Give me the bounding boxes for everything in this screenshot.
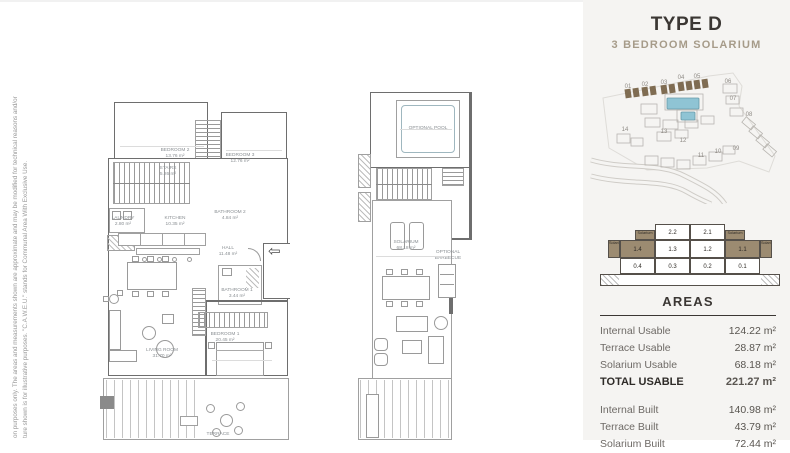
building-section: Solarium 2.2 2.1 Solarium Solarium 1.4 1… [608, 224, 764, 288]
areas-table: AREAS Internal Usable 124.22 m² Terrace … [583, 294, 790, 453]
chair [416, 301, 423, 307]
dimension-line [400, 129, 452, 130]
toilet [222, 268, 232, 276]
building-number: 06 [725, 79, 732, 85]
ladder [442, 168, 464, 186]
chair [162, 291, 169, 297]
disclaimer: on purposes only. The areas and measurem… [11, 58, 31, 438]
barbecue [438, 264, 456, 298]
coffee-table [402, 340, 422, 354]
section-unit-1-2: 1.2 [690, 240, 725, 258]
bed [216, 342, 264, 376]
section-base [600, 274, 780, 286]
section-unit-1-1: 1.1 [725, 240, 760, 258]
chair [132, 256, 139, 262]
area-value: 124.22 m² [729, 323, 776, 340]
site-map-graphic: 01 02 03 04 05 06 07 08 09 10 11 12 13 1… [589, 64, 783, 204]
label-living: LIVING ROOM31.70 m² [137, 348, 187, 360]
area-value: 221.27 m² [726, 374, 776, 391]
label-bathroom2: BATHROOM 24.84 m² [205, 210, 255, 222]
entrance-arrow-icon: ⇦ [268, 244, 281, 259]
building-number: 10 [715, 149, 722, 155]
label-bedroom1: BEDROOM 120.45 m² [200, 332, 250, 344]
planter [358, 154, 371, 188]
building-number: 07 [730, 96, 737, 102]
area-row: Terrace Usable 28.87 m² [600, 340, 776, 357]
coffee-table [142, 326, 156, 340]
outdoor-table [220, 414, 233, 427]
lounge-chair [374, 353, 388, 366]
section-unit-2-1: 2.1 [690, 224, 725, 240]
section-unit-1-4: 1.4 [620, 240, 655, 258]
chair [386, 301, 393, 307]
outdoor-dining-table [382, 276, 430, 300]
area-row: Solarium Built 72.44 m² [600, 436, 776, 453]
section-unit-0-4: 0.4 [620, 258, 655, 274]
label-bedroom3: BEDROOM 312.76 m² [215, 153, 265, 165]
wardrobe-hatch [198, 312, 268, 328]
disclaimer-line-1: on purposes only. The areas and measurem… [11, 58, 21, 438]
chair [103, 296, 109, 302]
cabinet-divider [140, 233, 141, 246]
section-unit-1-3: 1.3 [655, 240, 690, 258]
exterior-wall [469, 92, 472, 240]
planter [358, 192, 371, 222]
cabinet-divider [162, 233, 163, 246]
chair [401, 269, 408, 275]
building-number: 14 [622, 127, 629, 133]
building-number: 13 [661, 129, 668, 135]
shower-hatch [246, 268, 259, 288]
area-value: 43.79 m² [735, 419, 776, 436]
section-solarium-top-right: Solarium [725, 230, 745, 240]
chair [386, 269, 393, 275]
section-ground-hatch [761, 275, 779, 285]
sofa [109, 350, 137, 362]
areas-group-gap [600, 391, 776, 402]
label-stairs: STAIRS5.26 m² [148, 166, 188, 178]
section-solarium-mid-left: Solarium [608, 240, 620, 258]
chair [401, 301, 408, 307]
chair [117, 290, 123, 296]
area-value: 68.18 m² [735, 357, 776, 374]
area-row-total: TOTAL USABLE 221.27 m² [600, 374, 776, 391]
pool-small [681, 112, 695, 120]
disclaimer-line-2: ture shown is for illustrative purposes.… [21, 58, 31, 438]
building-number: 01 [625, 84, 632, 90]
building-number: 08 [746, 112, 753, 118]
brochure-page: { "disclaimer": { "line1": "on purposes … [0, 0, 790, 440]
building-number: 11 [698, 153, 705, 159]
dimension-line [120, 146, 204, 147]
sofa [109, 310, 121, 350]
floorplan-solarium: OPTIONAL POOL SOLARIUM68.18 m² OPTIONALB… [356, 88, 482, 440]
chair [147, 256, 154, 262]
kitchen-island [136, 248, 200, 255]
lounge-chair [374, 338, 388, 351]
building-number: 09 [733, 146, 740, 152]
dining-table [127, 262, 177, 290]
chair [416, 269, 423, 275]
cabinet-divider [184, 233, 185, 246]
label-laundry: LAUNDRY2.80 m² [103, 216, 143, 228]
area-label: TOTAL USABLE [600, 374, 684, 391]
stair-divider [113, 183, 190, 184]
label-hall: HALL11.48 m² [208, 246, 248, 258]
info-panel: TYPE D 3 BEDROOM SOLARIUM [583, 0, 790, 440]
barbecue-shelf [440, 274, 454, 275]
planter [100, 396, 114, 409]
area-value: 28.87 m² [735, 340, 776, 357]
outdoor-sofa [428, 336, 444, 364]
dimension-line [212, 360, 272, 361]
building-number: 04 [678, 75, 685, 81]
stair-divider [376, 184, 432, 185]
dimension-line [226, 150, 282, 151]
label-terrace: TERRACE [193, 432, 243, 438]
area-value: 140.98 m² [729, 402, 776, 419]
pergola-louvers [106, 380, 196, 438]
building-number: 05 [694, 74, 701, 80]
section-ground-hatch [601, 275, 619, 285]
exterior-wall [452, 238, 472, 240]
outdoor-chair [236, 402, 245, 411]
site-map: 01 02 03 04 05 06 07 08 09 10 11 12 13 1… [589, 64, 783, 204]
armchair [162, 314, 174, 324]
pool [667, 98, 699, 109]
area-label: Solarium Usable [600, 357, 677, 374]
section-unit-0-2: 0.2 [690, 258, 725, 274]
section-solarium-top-left: Solarium [635, 230, 655, 240]
area-row: Terrace Built 43.79 m² [600, 419, 776, 436]
section-unit-0-3: 0.3 [655, 258, 690, 274]
section-solarium-mid-right: Solarium [760, 240, 772, 258]
nightstand [265, 342, 272, 349]
area-label: Terrace Usable [600, 340, 671, 357]
chair [162, 256, 169, 262]
chair [132, 291, 139, 297]
area-row: Solarium Usable 68.18 m² [600, 357, 776, 374]
areas-title: AREAS [600, 294, 776, 309]
building-number: 03 [661, 80, 668, 86]
type-subtitle: 3 BEDROOM SOLARIUM [583, 39, 790, 51]
planter [366, 394, 379, 438]
building-number: 12 [680, 138, 687, 144]
section-unit-2-2: 2.2 [655, 224, 690, 240]
label-kitchen: KITCHEN10.35 m² [150, 216, 200, 228]
building-number: 02 [642, 82, 649, 88]
label-bathroom1: BATHROOM 13.44 m² [212, 288, 262, 300]
areas-divider [600, 315, 776, 316]
chair [147, 291, 154, 297]
barbecue-shelf [440, 284, 454, 285]
floorplan-ground: ⇦ [100, 98, 290, 440]
round-chair [434, 316, 448, 330]
bed-pillow-line [216, 350, 264, 351]
area-label: Solarium Built [600, 436, 665, 453]
area-row: Internal Built 140.98 m² [600, 402, 776, 419]
type-title: TYPE D [583, 14, 790, 36]
section-unit-0-1: 0.1 [725, 258, 760, 274]
area-label: Internal Built [600, 402, 658, 419]
area-value: 72.44 m² [735, 436, 776, 453]
area-row: Internal Usable 124.22 m² [600, 323, 776, 340]
outdoor-bench [180, 416, 198, 426]
dimension-line [376, 256, 448, 257]
outdoor-sofa [396, 316, 428, 332]
outdoor-chair [206, 404, 215, 413]
stool [187, 257, 192, 262]
area-label: Internal Usable [600, 323, 671, 340]
area-label: Terrace Built [600, 419, 658, 436]
label-bedroom2: BEDROOM 213.76 m² [150, 148, 200, 160]
other-buildings [617, 84, 777, 169]
label-solarium: SOLARIUM68.18 m² [381, 240, 431, 252]
